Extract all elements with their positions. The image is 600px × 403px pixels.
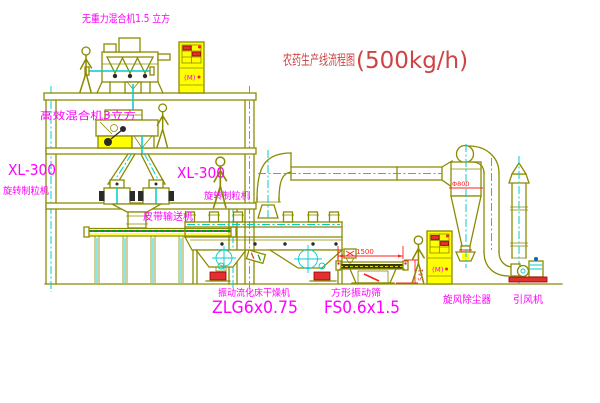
label-screen-model: FS0.6x1.5 <box>324 298 400 317</box>
title-capacity: (500kg/h) <box>356 48 468 74</box>
cyclone-dimension: Φ800 <box>452 180 470 188</box>
conveyor-legs <box>95 236 183 283</box>
label-high-eff-mixer: 高效混合机3立方 <box>40 109 136 122</box>
fluid-bed-dryer-machine <box>184 212 342 283</box>
cabinet-right-marking: (M) <box>432 266 444 274</box>
control-cabinet-right: (M) <box>427 231 452 284</box>
process-flow-diagram: (M) <box>0 0 600 403</box>
label-xl300-mid: XL-300 <box>177 164 225 182</box>
label-dryer-model: ZLG6x0.75 <box>212 298 298 317</box>
screen-length-dim: 1500 <box>356 248 374 256</box>
rotary-granulators <box>99 180 174 204</box>
induced-draft-fan-machine <box>509 257 547 282</box>
control-cabinet-top: (M) <box>179 42 204 93</box>
exhaust-duct <box>255 150 452 218</box>
cabinet-top-marking: (M) <box>184 74 196 82</box>
dryer-valve <box>247 250 266 263</box>
drawing-title: 农药生产线流程图 (500kg/h) <box>283 48 468 74</box>
label-xl300-left: XL-300 <box>8 161 56 179</box>
label-granulator-left: 旋转制粒机 <box>3 185 49 197</box>
label-granulator-mid: 旋转制粒机 <box>204 190 250 202</box>
worker-figure <box>80 47 92 92</box>
cad-drawing-canvas: (M) <box>0 0 600 403</box>
label-cyclone: 旋风除尘器 <box>443 293 491 306</box>
label-belt-conveyor: 皮带输送机 <box>143 210 193 223</box>
label-fan: 引风机 <box>513 293 543 306</box>
label-gravity-mixer: 无重力混合机1.5 立方 <box>82 12 170 25</box>
title-text: 农药生产线流程图 <box>283 53 355 69</box>
